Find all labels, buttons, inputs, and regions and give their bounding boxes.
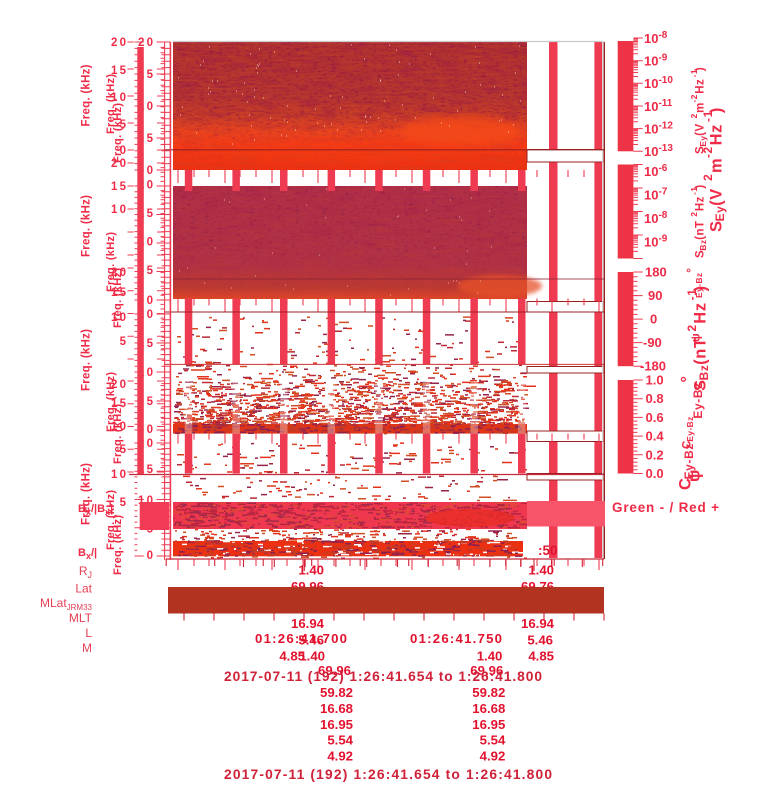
svg-text:-2: -2 bbox=[701, 146, 715, 158]
svg-text:°: ° bbox=[678, 375, 696, 382]
svg-text:5.54: 5.54 bbox=[327, 733, 353, 748]
svg-text:MLT: MLT bbox=[69, 611, 93, 625]
svg-text:Hz: Hz bbox=[695, 196, 707, 211]
svg-text:°: ° bbox=[686, 268, 698, 273]
svg-text:1.40: 1.40 bbox=[477, 649, 503, 664]
svg-text:0: 0 bbox=[650, 312, 657, 327]
svg-text:0: 0 bbox=[147, 165, 153, 177]
svg-text:Ey-Bz: Ey-Bz bbox=[682, 443, 696, 479]
svg-text:15: 15 bbox=[111, 181, 127, 193]
svg-text:5.46: 5.46 bbox=[527, 633, 553, 648]
svg-text:4.85: 4.85 bbox=[528, 649, 554, 664]
svg-text:Freq. (kHz): Freq. (kHz) bbox=[112, 515, 124, 575]
svg-text:2: 2 bbox=[701, 174, 715, 181]
svg-text:0: 0 bbox=[147, 424, 153, 436]
svg-text:5: 5 bbox=[120, 497, 127, 509]
svg-text:16.68: 16.68 bbox=[320, 701, 353, 716]
svg-text:5: 5 bbox=[120, 336, 127, 348]
svg-text:Hz: Hz bbox=[707, 124, 725, 146]
svg-text:-90: -90 bbox=[643, 335, 662, 350]
svg-text:Hz: Hz bbox=[691, 302, 709, 324]
svg-text:-180: -180 bbox=[640, 359, 666, 374]
svg-text:Bz: Bz bbox=[698, 240, 708, 251]
svg-text:0.2: 0.2 bbox=[646, 447, 664, 462]
svg-text:5: 5 bbox=[147, 133, 154, 145]
svg-text:Hz: Hz bbox=[695, 79, 707, 94]
svg-text:16.68: 16.68 bbox=[472, 701, 505, 716]
svg-text:4.92: 4.92 bbox=[480, 749, 506, 764]
svg-text:2017-07-11 (192) 1:26:41.654 t: 2017-07-11 (192) 1:26:41.654 to 1:26:41.… bbox=[224, 767, 552, 782]
svg-text:Ey: Ey bbox=[713, 206, 727, 222]
svg-text:0: 0 bbox=[147, 550, 153, 562]
svg-text:): ) bbox=[691, 285, 709, 291]
svg-text:(nT: (nT bbox=[691, 337, 709, 365]
svg-text:2: 2 bbox=[689, 113, 699, 118]
svg-text:-2: -2 bbox=[689, 94, 699, 102]
svg-text:90: 90 bbox=[648, 288, 662, 303]
svg-text:): ) bbox=[707, 107, 725, 113]
svg-text:Freq. (kHz): Freq. (kHz) bbox=[81, 64, 93, 126]
svg-text:(V: (V bbox=[695, 123, 707, 135]
svg-text:16.94: 16.94 bbox=[521, 616, 555, 631]
svg-text:1.40: 1.40 bbox=[299, 649, 325, 664]
svg-text:Freq. (kHz): Freq. (kHz) bbox=[112, 268, 124, 328]
svg-text:Bz: Bz bbox=[697, 365, 711, 381]
svg-text:5.54: 5.54 bbox=[480, 733, 506, 748]
svg-text:59.82: 59.82 bbox=[472, 685, 505, 700]
svg-text:Ey-Bz: Ey-Bz bbox=[685, 416, 695, 441]
svg-text:m: m bbox=[707, 158, 725, 173]
svg-text:59.82: 59.82 bbox=[320, 685, 353, 700]
svg-text:): ) bbox=[695, 184, 707, 188]
svg-text:2017-07-11 (192) 1:26:41.654 t: 2017-07-11 (192) 1:26:41.654 to 1:26:41.… bbox=[224, 669, 542, 684]
svg-text:16.94: 16.94 bbox=[291, 616, 325, 631]
svg-text:180: 180 bbox=[645, 265, 667, 280]
svg-text:01:26:41.750: 01:26:41.750 bbox=[410, 631, 502, 646]
svg-text:01:26:41.700: 01:26:41.700 bbox=[255, 631, 347, 646]
svg-text:5: 5 bbox=[147, 265, 154, 277]
svg-text:1.0: 1.0 bbox=[646, 373, 664, 388]
svg-text:16.95: 16.95 bbox=[472, 717, 505, 732]
svg-text:Ey-Bz: Ey-Bz bbox=[691, 382, 705, 418]
svg-text:Freq. (kHz): Freq. (kHz) bbox=[81, 329, 93, 391]
svg-text:1.40: 1.40 bbox=[298, 563, 324, 578]
svg-text:Green - / Red +: Green - / Red + bbox=[612, 500, 719, 515]
svg-text:Lat: Lat bbox=[75, 582, 92, 596]
svg-text:Freq. (kHz): Freq. (kHz) bbox=[81, 195, 93, 257]
svg-text:L: L bbox=[85, 626, 92, 640]
svg-text::50: :50 bbox=[538, 543, 558, 558]
svg-text:Freq. (kHz): Freq. (kHz) bbox=[112, 103, 124, 163]
svg-text:4.92: 4.92 bbox=[327, 749, 353, 764]
svg-text:Ey: Ey bbox=[698, 136, 708, 147]
svg-text:2: 2 bbox=[689, 212, 699, 217]
svg-text:2: 2 bbox=[685, 324, 699, 331]
svg-text:0.0: 0.0 bbox=[646, 466, 664, 481]
svg-text:Freq. (kHz): Freq. (kHz) bbox=[112, 404, 124, 464]
svg-text:16.95: 16.95 bbox=[320, 717, 353, 732]
svg-text:(V: (V bbox=[707, 188, 725, 206]
svg-text:): ) bbox=[695, 67, 707, 71]
svg-text:0: 0 bbox=[147, 295, 153, 307]
svg-text:5: 5 bbox=[147, 396, 154, 408]
svg-text:1.40: 1.40 bbox=[528, 563, 554, 578]
svg-text:M: M bbox=[82, 641, 92, 655]
svg-text:0.6: 0.6 bbox=[646, 410, 664, 425]
svg-text:(nT: (nT bbox=[695, 221, 707, 240]
svg-text:0.8: 0.8 bbox=[646, 391, 664, 406]
svg-text:0.4: 0.4 bbox=[646, 429, 665, 444]
